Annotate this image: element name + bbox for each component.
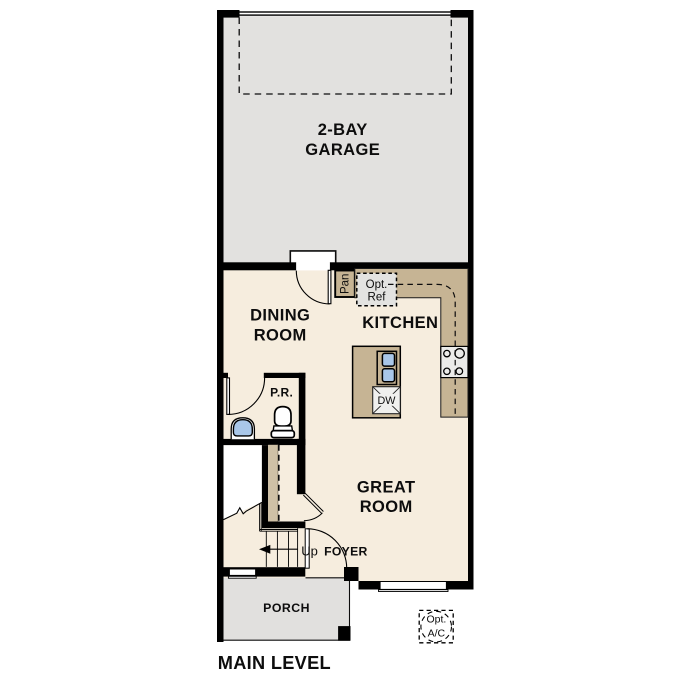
svg-text:2-BAY: 2-BAY	[318, 121, 368, 139]
svg-text:FOYER: FOYER	[324, 545, 367, 559]
svg-text:KITCHEN: KITCHEN	[362, 314, 438, 332]
svg-text:DW: DW	[378, 395, 397, 407]
svg-text:Opt.: Opt.	[426, 613, 446, 625]
svg-text:Opt.: Opt.	[366, 279, 388, 291]
svg-text:Ref: Ref	[368, 292, 387, 304]
svg-text:P.R.: P.R.	[270, 386, 293, 400]
svg-text:ROOM: ROOM	[360, 498, 413, 516]
svg-text:Up: Up	[301, 543, 318, 558]
svg-text:GREAT: GREAT	[357, 479, 416, 497]
svg-text:DINING: DINING	[250, 306, 310, 324]
svg-text:MAIN LEVEL: MAIN LEVEL	[218, 653, 331, 673]
svg-text:Pan: Pan	[340, 274, 352, 294]
svg-text:GARAGE: GARAGE	[305, 141, 380, 159]
svg-text:A/C: A/C	[428, 627, 446, 639]
svg-text:PORCH: PORCH	[263, 601, 310, 615]
svg-text:ROOM: ROOM	[254, 327, 307, 345]
